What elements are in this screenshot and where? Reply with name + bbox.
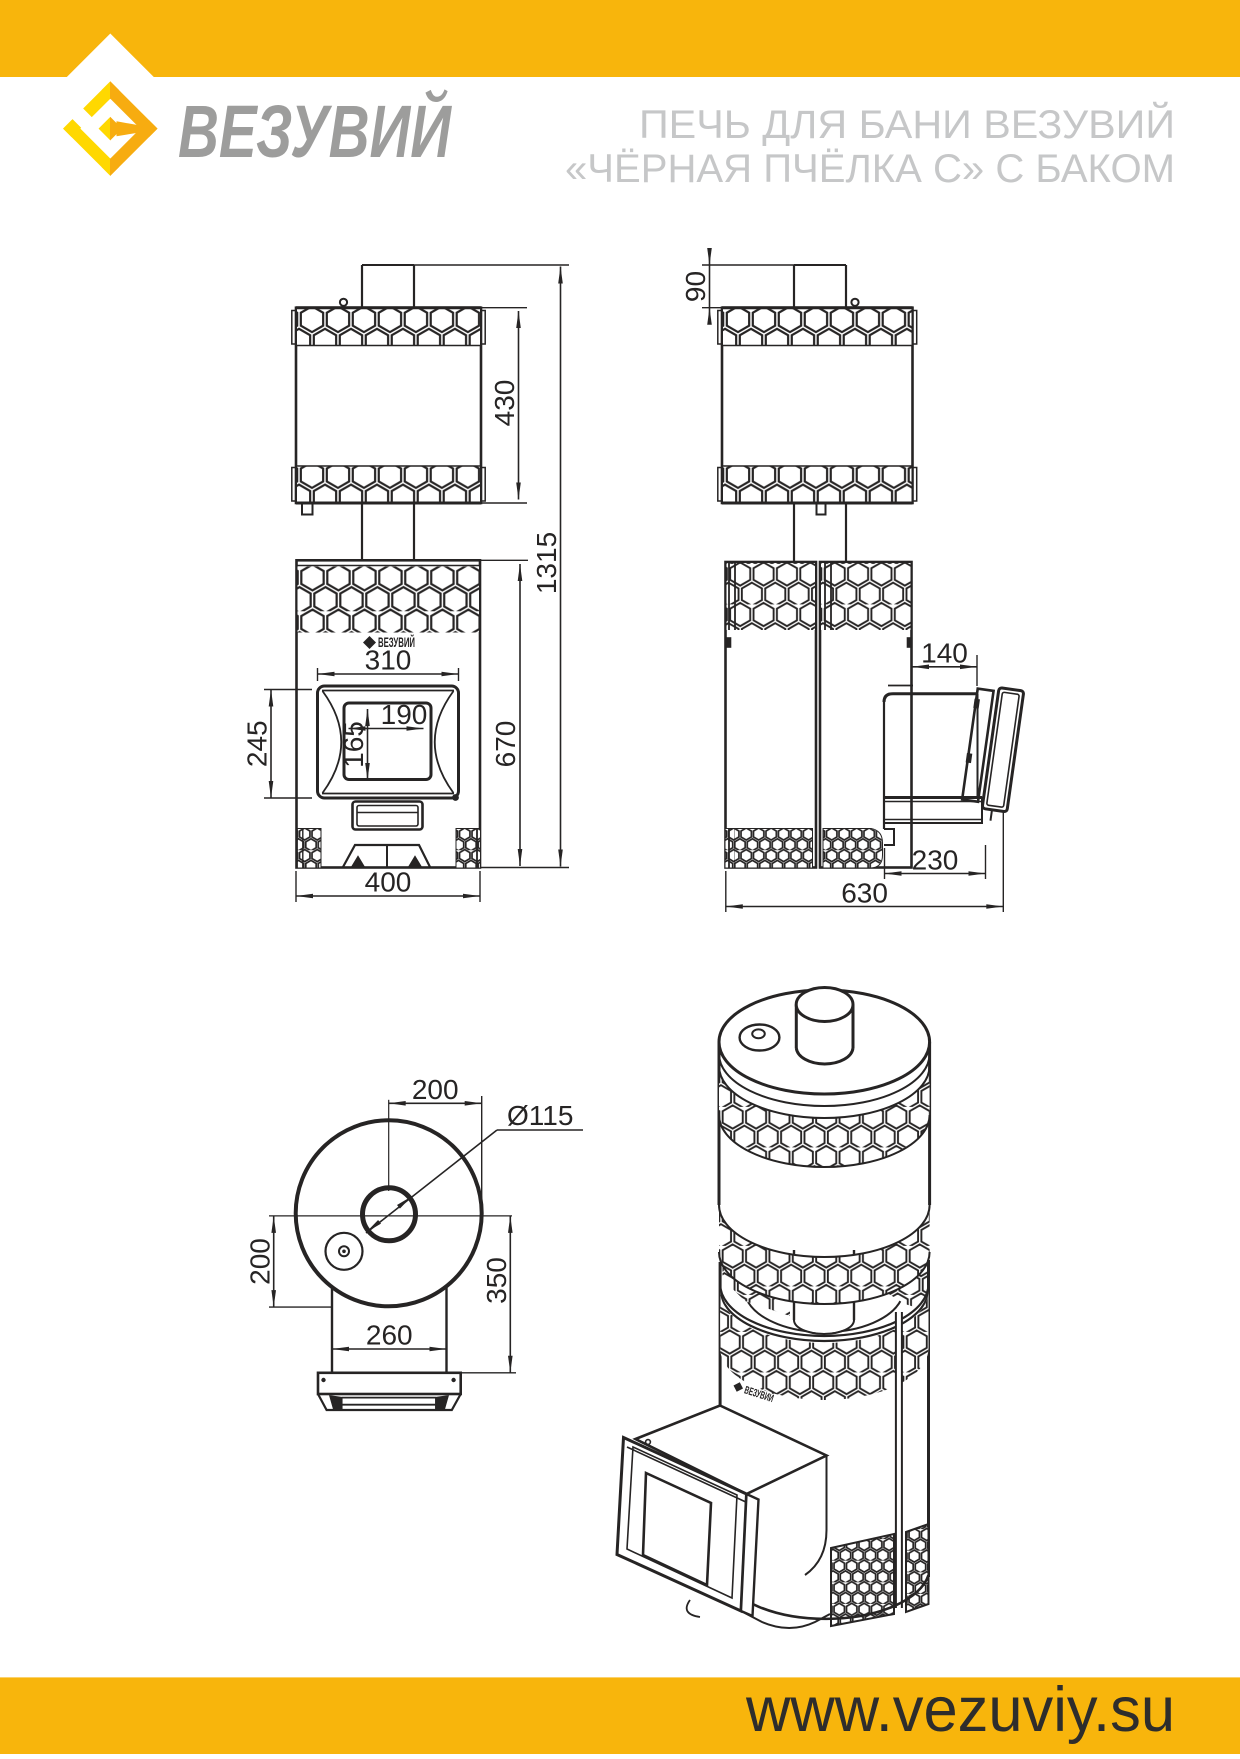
- svg-text:200: 200: [245, 1238, 276, 1285]
- svg-text:140: 140: [921, 638, 968, 669]
- svg-text:200: 200: [412, 1074, 459, 1105]
- svg-text:230: 230: [912, 845, 959, 876]
- svg-text:310: 310: [365, 645, 412, 676]
- svg-text:670: 670: [490, 721, 521, 768]
- svg-text:1315: 1315: [531, 532, 562, 594]
- svg-text:ВЕЗУВИЙ: ВЕЗУВИЙ: [178, 89, 452, 173]
- svg-text:90: 90: [680, 271, 711, 302]
- svg-text:ПЕЧЬ ДЛЯ БАНИ ВЕЗУВИЙ: ПЕЧЬ ДЛЯ БАНИ ВЕЗУВИЙ: [639, 101, 1175, 147]
- svg-text:Ø115: Ø115: [507, 1100, 573, 1131]
- svg-text:350: 350: [481, 1257, 512, 1304]
- svg-text:260: 260: [366, 1320, 413, 1351]
- svg-text:«ЧЁРНАЯ ПЧЁЛКА С» С БАКОМ: «ЧЁРНАЯ ПЧЁЛКА С» С БАКОМ: [565, 147, 1175, 191]
- svg-text:630: 630: [841, 878, 888, 909]
- svg-text:www.vezuviy.su: www.vezuviy.su: [745, 1675, 1175, 1745]
- svg-text:430: 430: [489, 380, 520, 427]
- svg-text:165: 165: [338, 721, 369, 768]
- svg-text:400: 400: [365, 867, 412, 898]
- svg-text:190: 190: [381, 699, 428, 730]
- svg-text:245: 245: [242, 720, 273, 767]
